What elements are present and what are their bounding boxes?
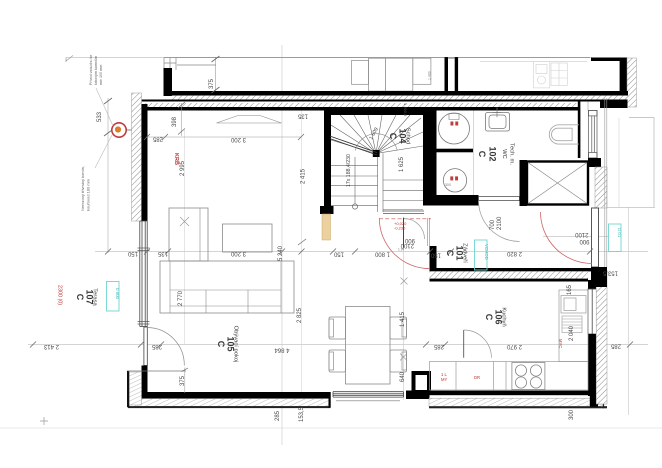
svg-text:153,5: 153,5 [602,270,618,276]
svg-text:VCHOD: VCHOD [484,244,489,260]
svg-text:2100: 2100 [574,231,588,237]
svg-text:150: 150 [430,252,441,258]
svg-text:700: 700 [490,219,496,230]
svg-text:4 864: 4 864 [274,347,290,353]
svg-text:2100: 2100 [497,216,503,230]
svg-text:1 800: 1 800 [374,251,390,257]
svg-text:135: 135 [297,113,308,119]
svg-text:153,5: 153,5 [299,406,305,422]
svg-text:C: C [216,341,226,348]
svg-text:533: 533 [97,111,103,122]
svg-text:MY: MY [441,377,447,382]
svg-text:2 415: 2 415 [301,168,307,184]
svg-text:Kuchyň: Kuchyň [501,307,507,326]
svg-text:150: 150 [127,250,138,256]
svg-text:1 625: 1 625 [399,156,405,172]
svg-text:2100: 2100 [400,242,414,248]
svg-text:285: 285 [433,343,444,349]
svg-text:kouřovod 180 mm: kouřovod 180 mm [86,178,91,211]
svg-text:1 390,8: 1 390,8 [403,103,408,117]
svg-text:285: 285 [152,136,163,142]
svg-text:150: 150 [333,251,344,257]
svg-text:KRB: KRB [173,153,179,165]
svg-text:1 400: 1 400 [428,71,432,80]
svg-text:C: C [477,151,487,158]
svg-text:WC: WC [501,149,507,159]
svg-text:krbovým kamnům: krbovým kamnům [94,56,98,85]
svg-text:3 200: 3 200 [230,136,246,142]
svg-text:2 995: 2 995 [180,160,186,176]
svg-text:2300 (0): 2300 (0) [57,285,63,305]
svg-text:D 01: D 01 [617,228,622,238]
svg-text:900: 900 [579,238,590,244]
svg-text:1 415: 1 415 [400,311,406,327]
svg-text:165: 165 [567,284,573,295]
svg-text:2 825: 2 825 [297,307,303,323]
svg-text:0 800: 0 800 [115,288,120,300]
svg-text:2 040: 2 040 [569,325,575,341]
svg-text:C: C [388,133,398,140]
svg-text:C: C [484,314,494,321]
svg-text:285: 285 [610,343,621,349]
svg-text:Schod: Schod [405,128,411,144]
svg-text:2 820: 2 820 [506,250,522,256]
svg-text:Přívod vzduchu ke: Přívod vzduchu ke [89,55,93,85]
svg-text:285: 285 [275,410,281,421]
svg-text:Nerezový třívrstvý komín,: Nerezový třívrstvý komín, [80,166,85,211]
svg-text:375: 375 [209,78,215,89]
svg-text:2 770: 2 770 [178,290,184,306]
svg-text:Terasa: Terasa [92,288,98,306]
svg-text:Obývací pokoj: Obývací pokoj [233,326,239,363]
svg-text:MYC: MYC [558,339,563,348]
svg-text:Tech. m.: Tech. m. [509,143,515,165]
svg-text:Zádveří: Zádveří [462,243,468,263]
svg-text:640: 640 [400,371,406,382]
svg-text:C: C [445,250,455,257]
svg-text:DR: DR [474,375,480,380]
svg-text:-0,230: -0,230 [394,226,406,231]
svg-text:2 970: 2 970 [506,343,522,349]
svg-text:C: C [75,294,85,301]
svg-text:min 100 mm: min 100 mm [99,65,103,85]
svg-text:17x 188,4/230: 17x 188,4/230 [346,154,352,187]
svg-text:300: 300 [445,183,451,187]
svg-text:5 240: 5 240 [278,245,284,261]
svg-text:375: 375 [180,375,186,386]
svg-text:398: 398 [172,116,178,127]
svg-text:285: 285 [151,343,162,349]
svg-text:102: 102 [488,146,498,161]
svg-text:3 200: 3 200 [230,250,246,256]
svg-text:2 413: 2 413 [43,343,59,349]
svg-text:300: 300 [569,409,575,420]
